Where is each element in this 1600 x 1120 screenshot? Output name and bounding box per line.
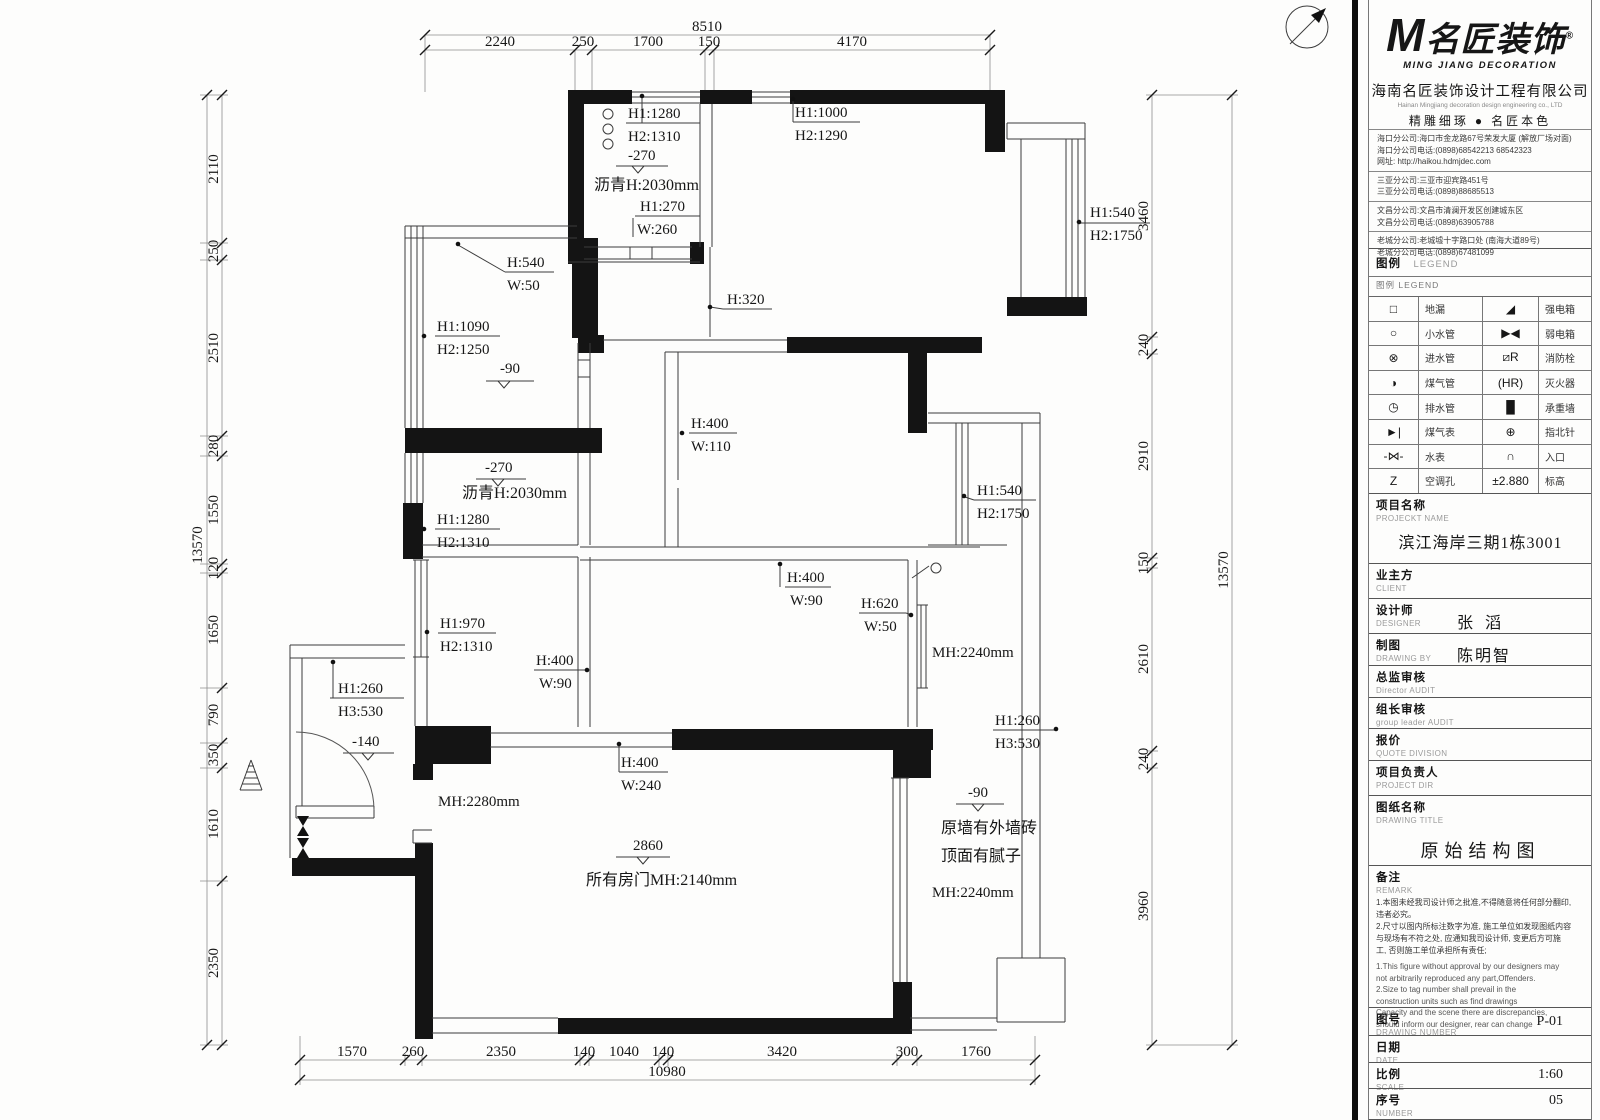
strong-electric-box-label: 强电箱 bbox=[1539, 297, 1591, 321]
field-sequence: 序号 NUMBER 05 bbox=[1369, 1088, 1591, 1120]
fire-hydrant-icon: ⧄R bbox=[1483, 346, 1539, 370]
ac-hole-icon: Z bbox=[1369, 469, 1419, 493]
field-scale: 比例 SCALE 1:60 bbox=[1369, 1062, 1591, 1088]
branch-office-line: 三亚分公司:三亚市迎宾路451号 bbox=[1377, 175, 1587, 187]
svg-text:3460: 3460 bbox=[1136, 201, 1152, 231]
svg-text:1610: 1610 bbox=[206, 809, 222, 839]
ticks-layer bbox=[202, 30, 1237, 1085]
draw-value: 陈明智 bbox=[1457, 642, 1511, 666]
remark-line-en: 2.Size to tag number shall prevail in th… bbox=[1376, 984, 1585, 996]
svg-text:2350: 2350 bbox=[486, 1044, 516, 1060]
svg-text:300: 300 bbox=[896, 1044, 919, 1060]
director-label-en: Director AUDIT bbox=[1376, 686, 1585, 695]
svg-text:8510: 8510 bbox=[692, 19, 722, 35]
legend-row: ○小水管▶◀弱电箱 bbox=[1369, 322, 1591, 347]
remark-line-cn: 1.本图未经我司设计师之批准,不得随意将任何部分翻印, bbox=[1376, 897, 1585, 909]
elevation-mark-label: 标高 bbox=[1539, 469, 1591, 493]
svg-text:1040: 1040 bbox=[609, 1044, 639, 1060]
legend-row: -⋈-水表∩入口 bbox=[1369, 445, 1591, 470]
svg-text:顶面有腻子: 顶面有腻子 bbox=[941, 847, 1021, 865]
svg-text:W:240: W:240 bbox=[621, 778, 661, 794]
field-director-audit: 总监审核 Director AUDIT bbox=[1369, 665, 1591, 697]
svg-text:H:320: H:320 bbox=[727, 292, 765, 308]
svg-text:H1:540: H1:540 bbox=[1090, 205, 1135, 221]
project-label-en: PROJECKT NAME bbox=[1376, 514, 1585, 523]
svg-text:H:400: H:400 bbox=[536, 653, 574, 669]
svg-text:H1:260: H1:260 bbox=[338, 681, 383, 697]
legend-row: Z空调孔±2.880标高 bbox=[1369, 469, 1591, 494]
quote-label-cn: 报价 bbox=[1376, 732, 1585, 748]
pm-label-en: PROJECT DIR bbox=[1376, 781, 1585, 790]
svg-text:240: 240 bbox=[1136, 748, 1152, 771]
scale-value: 1:60 bbox=[1538, 1067, 1563, 1083]
svg-text:H2:1290: H2:1290 bbox=[795, 128, 848, 144]
svg-text:140: 140 bbox=[573, 1044, 596, 1060]
branch-office-line: 海口分公司:海口市金龙路67号荣发大厦 (解放厂场对面) bbox=[1377, 133, 1587, 145]
svg-text:H1:1280: H1:1280 bbox=[437, 512, 490, 528]
svg-text:H:400: H:400 bbox=[621, 755, 659, 771]
field-quote: 报价 QUOTE DIVISION bbox=[1369, 728, 1591, 760]
drain-pipe-label: 排水管 bbox=[1419, 395, 1483, 419]
svg-text:13570: 13570 bbox=[190, 526, 206, 564]
branch-office-line: 三亚分公司电话:(0898)88685513 bbox=[1377, 186, 1587, 198]
svg-text:H:400: H:400 bbox=[691, 416, 729, 432]
company-info: 海南名匠装饰设计工程有限公司 Hainan Mingjiang decorati… bbox=[1369, 80, 1591, 129]
load-bearing-wall-icon: █ bbox=[1483, 395, 1539, 419]
company-logo: M名匠装饰® MING JIANG DECORATION bbox=[1369, 8, 1591, 71]
field-drawing-number: 图号 DRAWING NUMBER P-01 bbox=[1369, 1007, 1591, 1035]
svg-text:H2:1750: H2:1750 bbox=[1090, 228, 1143, 244]
thin-lines-layer bbox=[240, 10, 1324, 1033]
pm-label-cn: 项目负责人 bbox=[1376, 764, 1585, 780]
svg-text:2510: 2510 bbox=[206, 333, 222, 363]
legend-row: ◑煤气管(HR)灭火器 bbox=[1369, 371, 1591, 396]
remark-line-cn: 违者必究。 bbox=[1376, 909, 1585, 921]
svg-text:H2:1310: H2:1310 bbox=[628, 129, 681, 145]
svg-text:W:90: W:90 bbox=[539, 676, 572, 692]
svg-text:260: 260 bbox=[402, 1044, 425, 1060]
field-project-name: 项目名称 PROJECKT NAME 滨江海岸三期1栋3001 bbox=[1369, 493, 1591, 563]
svg-text:150: 150 bbox=[698, 34, 721, 50]
svg-text:H2:1310: H2:1310 bbox=[437, 535, 490, 551]
legend-row: □地漏◢强电箱 bbox=[1369, 297, 1591, 322]
svg-text:1760: 1760 bbox=[961, 1044, 991, 1060]
plan-text-layer: 8510224025017001504170135702110250251028… bbox=[190, 19, 1232, 1080]
director-label-cn: 总监审核 bbox=[1376, 669, 1585, 685]
title-label-cn: 图纸名称 bbox=[1376, 799, 1585, 815]
svg-text:350: 350 bbox=[206, 744, 222, 767]
field-client: 业主方 CLIENT bbox=[1369, 563, 1591, 598]
elevation-mark-icon: ±2.880 bbox=[1483, 469, 1539, 493]
svg-text:3420: 3420 bbox=[767, 1044, 797, 1060]
title-block: M名匠装饰® MING JIANG DECORATION 海南名匠装饰设计工程有… bbox=[1352, 0, 1598, 1120]
svg-text:H1:1090: H1:1090 bbox=[437, 319, 490, 335]
branch-office-group: 海口分公司:海口市金龙路67号荣发大厦 (解放厂场对面)海口分公司电话:(089… bbox=[1369, 129, 1591, 171]
svg-text:W:110: W:110 bbox=[691, 439, 731, 455]
field-leader-audit: 组长审核 group leader AUDIT bbox=[1369, 697, 1591, 728]
sequence-value: 05 bbox=[1549, 1093, 1563, 1109]
svg-text:2240: 2240 bbox=[485, 34, 515, 50]
svg-text:沥青H:2030mm: 沥青H:2030mm bbox=[594, 176, 699, 194]
svg-text:4170: 4170 bbox=[837, 34, 867, 50]
svg-text:H1:270: H1:270 bbox=[640, 199, 685, 215]
remark-text-cn: 1.本图未经我司设计师之批准,不得随意将任何部分翻印, 违者必究。2.尺寸以图内… bbox=[1376, 897, 1585, 957]
gas-meter-label: 煤气表 bbox=[1419, 420, 1483, 444]
svg-text:原墙有外墙砖: 原墙有外墙砖 bbox=[941, 819, 1037, 837]
svg-text:H1:970: H1:970 bbox=[440, 616, 485, 632]
svg-text:H:540: H:540 bbox=[507, 255, 545, 271]
remark-line-cn: 2.尺寸以图内所标注数字为准, 施工单位如发现图纸内容 bbox=[1376, 921, 1585, 933]
svg-text:1700: 1700 bbox=[633, 34, 663, 50]
branch-office-line: 文昌分公司电话:(0898)63905788 bbox=[1377, 217, 1587, 229]
svg-text:-90: -90 bbox=[500, 361, 520, 377]
branch-offices: 海口分公司:海口市金龙路67号荣发大厦 (解放厂场对面)海口分公司电话:(089… bbox=[1369, 129, 1591, 261]
drain-pipe-icon: ◷ bbox=[1369, 395, 1419, 419]
svg-text:H1:1280: H1:1280 bbox=[628, 106, 681, 122]
field-designer: 设计师 DESIGNER 张 滔 bbox=[1369, 598, 1591, 633]
field-project-dir: 项目负责人 PROJECT DIR bbox=[1369, 760, 1591, 795]
svg-text:-140: -140 bbox=[352, 734, 380, 750]
remark-line-en: not arbitrarily reproduced any part,Offe… bbox=[1376, 973, 1585, 985]
svg-text:150: 150 bbox=[1136, 552, 1152, 575]
seq-label-en: NUMBER bbox=[1376, 1109, 1585, 1118]
svg-text:W:90: W:90 bbox=[790, 593, 823, 609]
legend-header: 图例 LEGEND bbox=[1369, 248, 1591, 272]
fire-extinguisher-icon: (HR) bbox=[1483, 371, 1539, 395]
svg-text:H:620: H:620 bbox=[861, 596, 899, 612]
remark-line-en: 1.This figure without approval by our de… bbox=[1376, 961, 1585, 973]
svg-text:2910: 2910 bbox=[1136, 441, 1152, 471]
quote-label-en: QUOTE DIVISION bbox=[1376, 749, 1585, 758]
svg-text:MH:2240mm: MH:2240mm bbox=[932, 645, 1014, 661]
svg-text:所有房门MH:2140mm: 所有房门MH:2140mm bbox=[586, 871, 738, 889]
svg-text:H2:1310: H2:1310 bbox=[440, 639, 493, 655]
water-meter-icon: -⋈- bbox=[1369, 445, 1419, 469]
fire-extinguisher-label: 灭火器 bbox=[1539, 371, 1591, 395]
branch-office-line: 老城分公司:老城墟十字路口处 (南海大道89号) bbox=[1377, 235, 1587, 247]
date-label-cn: 日期 bbox=[1376, 1039, 1585, 1055]
water-inlet-pipe-label: 进水管 bbox=[1419, 346, 1483, 370]
north-compass-icon: ⊕ bbox=[1483, 420, 1539, 444]
svg-text:10980: 10980 bbox=[648, 1064, 686, 1080]
svg-text:1570: 1570 bbox=[337, 1044, 367, 1060]
field-drawing-title: 图纸名称 DRAWING TITLE 原始结构图 bbox=[1369, 795, 1591, 865]
svg-text:H3:530: H3:530 bbox=[995, 736, 1040, 752]
svg-text:H2:1750: H2:1750 bbox=[977, 506, 1030, 522]
client-label-cn: 业主方 bbox=[1376, 567, 1585, 583]
svg-text:1550: 1550 bbox=[206, 495, 222, 525]
small-water-pipe-label: 小水管 bbox=[1419, 322, 1483, 346]
svg-text:140: 140 bbox=[652, 1044, 675, 1060]
svg-text:2110: 2110 bbox=[206, 154, 222, 183]
svg-text:2610: 2610 bbox=[1136, 644, 1152, 674]
svg-text:沥青H:2030mm: 沥青H:2030mm bbox=[462, 484, 567, 502]
svg-text:H3:530: H3:530 bbox=[338, 704, 383, 720]
remark-label-en: REMARK bbox=[1376, 886, 1585, 895]
branch-office-line: 文昌分公司:文昌市清澜开发区创建城东区 bbox=[1377, 205, 1587, 217]
client-label-en: CLIENT bbox=[1376, 584, 1585, 593]
entrance-label: 入口 bbox=[1539, 445, 1591, 469]
svg-text:W:50: W:50 bbox=[507, 278, 540, 294]
leader-label-cn: 组长审核 bbox=[1376, 701, 1585, 717]
svg-text:2860: 2860 bbox=[633, 838, 663, 854]
svg-text:1650: 1650 bbox=[206, 615, 222, 645]
strong-electric-box-icon: ◢ bbox=[1483, 297, 1539, 321]
svg-text:W:260: W:260 bbox=[637, 222, 677, 238]
remark-line-cn: 工, 否则施工单位承担所有责任; bbox=[1376, 945, 1585, 957]
svg-text:MH:2240mm: MH:2240mm bbox=[932, 885, 1014, 901]
svg-text:H:400: H:400 bbox=[787, 570, 825, 586]
weak-electric-box-icon: ▶◀ bbox=[1483, 322, 1539, 346]
branch-office-line: 网址: http://haikou.hdmjdec.com bbox=[1377, 156, 1587, 168]
floor-drain-icon: □ bbox=[1369, 297, 1419, 321]
legend-row: ◷排水管█承重墙 bbox=[1369, 395, 1591, 420]
north-compass-label: 指北针 bbox=[1539, 420, 1591, 444]
load-bearing-wall-label: 承重墙 bbox=[1539, 395, 1591, 419]
weak-electric-box-label: 弱电箱 bbox=[1539, 322, 1591, 346]
company-name-en: Hainan Mingjiang decoration design engin… bbox=[1369, 102, 1591, 109]
legend-row: ⊗进水管⧄R消防栓 bbox=[1369, 346, 1591, 371]
drawing-number-value: P-01 bbox=[1537, 1014, 1563, 1030]
water-meter-label: 水表 bbox=[1419, 445, 1483, 469]
drawing-title-value: 原始结构图 bbox=[1376, 837, 1585, 863]
svg-text:H1:540: H1:540 bbox=[977, 483, 1022, 499]
svg-text:120: 120 bbox=[206, 557, 222, 580]
branch-office-group: 文昌分公司:文昌市清澜开发区创建城东区文昌分公司电话:(0898)6390578… bbox=[1369, 201, 1591, 231]
ac-hole-label: 空调孔 bbox=[1419, 469, 1483, 493]
svg-text:790: 790 bbox=[206, 704, 222, 727]
svg-text:250: 250 bbox=[206, 240, 222, 263]
svg-text:W:50: W:50 bbox=[864, 619, 897, 635]
water-inlet-pipe-icon: ⊗ bbox=[1369, 346, 1419, 370]
drawing-sheet: 8510224025017001504170135702110250251028… bbox=[0, 0, 1600, 1120]
legend-title-en: LEGEND bbox=[1413, 259, 1458, 270]
leader-label-en: group leader AUDIT bbox=[1376, 718, 1585, 727]
remark-line-cn: 与现场有不符之处, 应通知我司设计师, 变更后方可施 bbox=[1376, 933, 1585, 945]
field-date: 日期 DATE bbox=[1369, 1035, 1591, 1062]
svg-text:MH:2280mm: MH:2280mm bbox=[438, 794, 520, 810]
svg-text:-270: -270 bbox=[485, 460, 513, 476]
svg-text:-270: -270 bbox=[628, 148, 656, 164]
small-water-pipe-icon: ○ bbox=[1369, 322, 1419, 346]
logo-text: M名匠装饰® bbox=[1369, 8, 1591, 62]
entrance-icon: ∩ bbox=[1483, 445, 1539, 469]
remark-line-en: construction units such as find drawings bbox=[1376, 996, 1585, 1008]
svg-text:13570: 13570 bbox=[1216, 551, 1232, 589]
remark-label-cn: 备注 bbox=[1376, 869, 1585, 885]
legend-table: □地漏◢强电箱○小水管▶◀弱电箱⊗进水管⧄R消防栓◑煤气管(HR)灭火器◷排水管… bbox=[1369, 296, 1591, 494]
svg-text:3960: 3960 bbox=[1136, 891, 1152, 921]
legend-row: ►|煤气表⊕指北针 bbox=[1369, 420, 1591, 445]
branch-office-group: 三亚分公司:三亚市迎宾路451号三亚分公司电话:(0898)88685513 bbox=[1369, 171, 1591, 201]
gas-meter-icon: ►| bbox=[1369, 420, 1419, 444]
svg-text:H1:260: H1:260 bbox=[995, 713, 1040, 729]
svg-text:280: 280 bbox=[206, 435, 222, 458]
svg-text:H1:1000: H1:1000 bbox=[795, 105, 848, 121]
svg-text:2350: 2350 bbox=[206, 948, 222, 978]
gas-pipe-label: 煤气管 bbox=[1419, 371, 1483, 395]
fire-hydrant-label: 消防栓 bbox=[1539, 346, 1591, 370]
field-remark: 备注 REMARK 1.本图未经我司设计师之批准,不得随意将任何部分翻印, 违者… bbox=[1369, 865, 1591, 1007]
designer-value: 张 滔 bbox=[1457, 609, 1505, 633]
svg-text:-90: -90 bbox=[968, 785, 988, 801]
legend-title-cn: 图例 bbox=[1376, 258, 1401, 270]
svg-text:240: 240 bbox=[1136, 334, 1152, 357]
project-value: 滨江海岸三期1栋3001 bbox=[1376, 529, 1585, 553]
svg-text:H2:1250: H2:1250 bbox=[437, 342, 490, 358]
svg-text:250: 250 bbox=[572, 34, 595, 50]
floor-drain-label: 地漏 bbox=[1419, 297, 1483, 321]
branch-office-line: 海口分公司电话:(0898)68542213 68542323 bbox=[1377, 145, 1587, 157]
company-name: 海南名匠装饰设计工程有限公司 bbox=[1369, 80, 1591, 101]
title-label-en: DRAWING TITLE bbox=[1376, 816, 1585, 825]
project-label-cn: 项目名称 bbox=[1376, 497, 1585, 513]
company-slogan: 精雕细琢 ● 名匠本色 bbox=[1369, 112, 1591, 129]
gas-pipe-icon: ◑ bbox=[1369, 371, 1419, 395]
field-drawing-by: 制图 DRAWING BY 陈明智 bbox=[1369, 633, 1591, 665]
